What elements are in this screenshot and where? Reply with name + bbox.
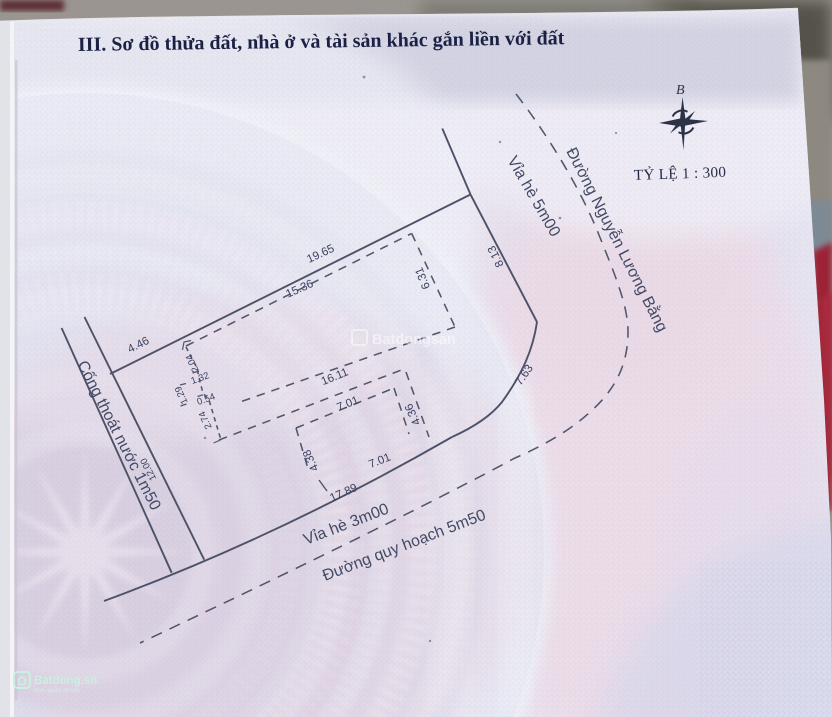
svg-text:B: B <box>676 83 685 98</box>
svg-text:Batdongsan: Batdongsan <box>372 332 456 348</box>
svg-text:khơi nguồn dữ liệu: khơi nguồn dữ liệu <box>34 688 80 694</box>
svg-text:Batdong.sn: Batdong.sn <box>34 675 97 687</box>
svg-text:TỶ LỆ 1 : 300: TỶ LỆ 1 : 300 <box>634 164 727 184</box>
